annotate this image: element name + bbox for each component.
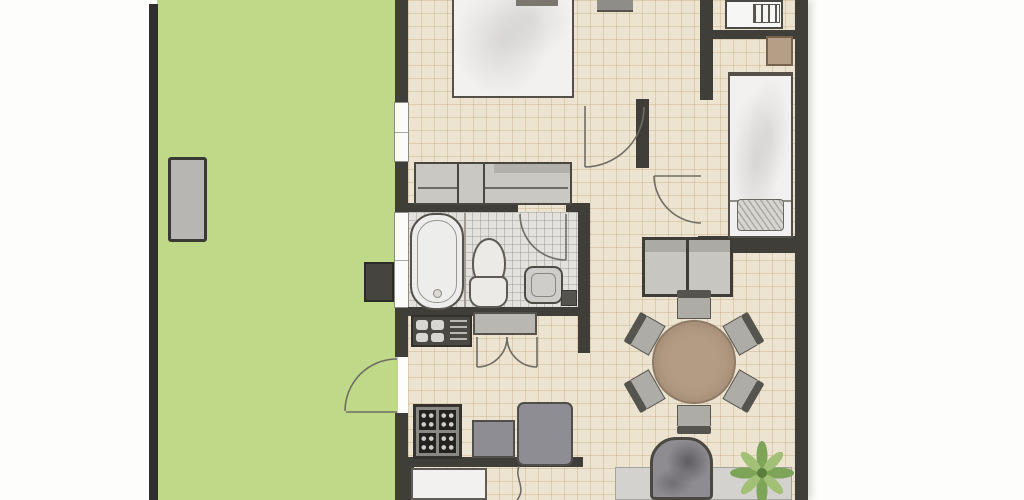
wall-garden-top-seg bbox=[395, 0, 408, 102]
dining-table-round bbox=[652, 320, 736, 404]
armchair bbox=[650, 437, 713, 500]
bathroom-partition-line bbox=[464, 213, 466, 307]
appliance-grid-unit bbox=[413, 404, 462, 459]
window-pane bbox=[395, 133, 408, 162]
bathtub bbox=[410, 213, 464, 310]
side-cabinet bbox=[766, 36, 793, 66]
bathroom-shelf bbox=[561, 290, 577, 306]
sideboard-cabinet bbox=[642, 237, 733, 297]
garden-bench bbox=[168, 157, 207, 242]
desk-unit bbox=[725, 0, 783, 29]
wall-hall-right bbox=[700, 0, 713, 100]
desk-chair-glyph bbox=[753, 4, 780, 23]
washbasin-inner bbox=[531, 273, 556, 297]
double-bed bbox=[452, 0, 574, 98]
wall-outer-left bbox=[149, 4, 158, 500]
low-table bbox=[411, 468, 487, 500]
stove-grill bbox=[450, 320, 467, 342]
kitchen-counter bbox=[473, 312, 537, 335]
pillow bbox=[737, 199, 784, 231]
stove-burners bbox=[413, 317, 447, 345]
window-pane bbox=[395, 103, 408, 133]
wardrobe-shelf-line bbox=[485, 187, 568, 189]
wardrobe-divider bbox=[483, 164, 485, 203]
room-garden bbox=[157, 0, 398, 500]
utility-box bbox=[364, 262, 394, 302]
stove bbox=[411, 315, 472, 347]
bedroom-window bbox=[394, 102, 409, 162]
window-pane bbox=[395, 213, 408, 261]
wall-garden-low-seg bbox=[395, 308, 408, 357]
washbasin bbox=[524, 266, 563, 304]
bathtub-drain bbox=[433, 289, 442, 298]
wardrobe-divider bbox=[457, 164, 459, 203]
pillow-cropped bbox=[516, 0, 558, 6]
wall-outer-right bbox=[795, 0, 808, 500]
wardrobe bbox=[414, 162, 572, 205]
fridge-box bbox=[517, 402, 573, 466]
wardrobe-shade bbox=[494, 164, 570, 173]
floor-plan-canvas bbox=[0, 0, 1024, 500]
nightstand bbox=[597, 0, 633, 12]
dining-chair bbox=[677, 404, 711, 434]
window-pane bbox=[395, 261, 408, 308]
cabinet-divider bbox=[686, 240, 689, 294]
dining-chair bbox=[677, 290, 711, 320]
bathroom-window bbox=[394, 212, 409, 308]
wardrobe-shelf-line bbox=[418, 187, 457, 189]
wall-garden-mid-seg bbox=[395, 162, 408, 213]
wall-hall-stub bbox=[636, 99, 649, 168]
wall-bathroom-right bbox=[578, 203, 590, 353]
appliance-box bbox=[472, 420, 515, 458]
toilet-base bbox=[469, 276, 508, 308]
